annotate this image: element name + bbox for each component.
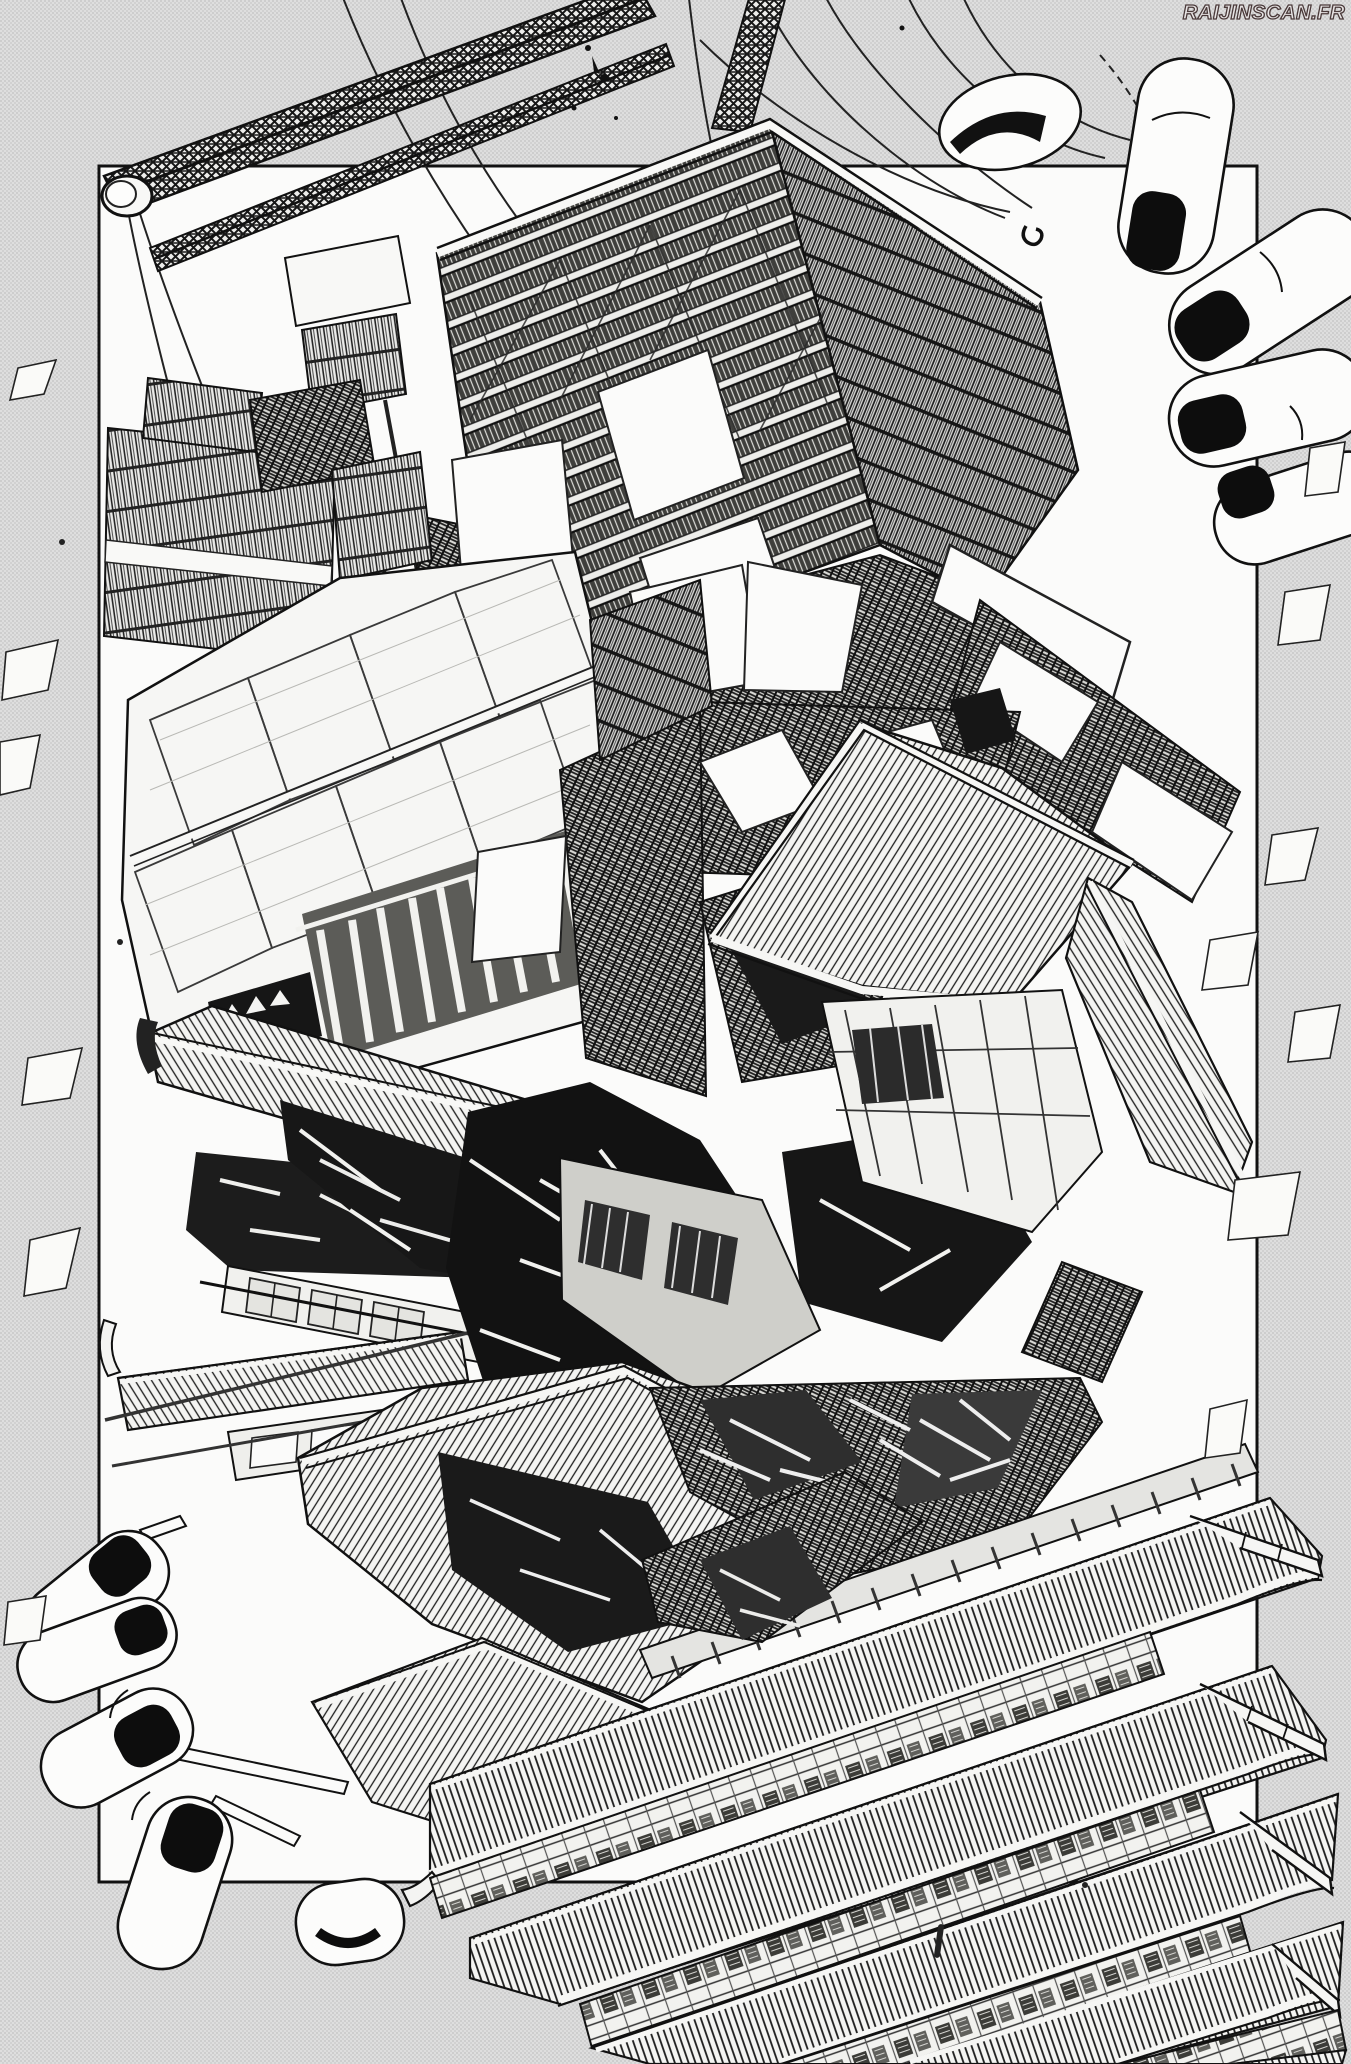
svg-text:RAIJINSCAN.FR: RAIJINSCAN.FR bbox=[1183, 1, 1345, 24]
